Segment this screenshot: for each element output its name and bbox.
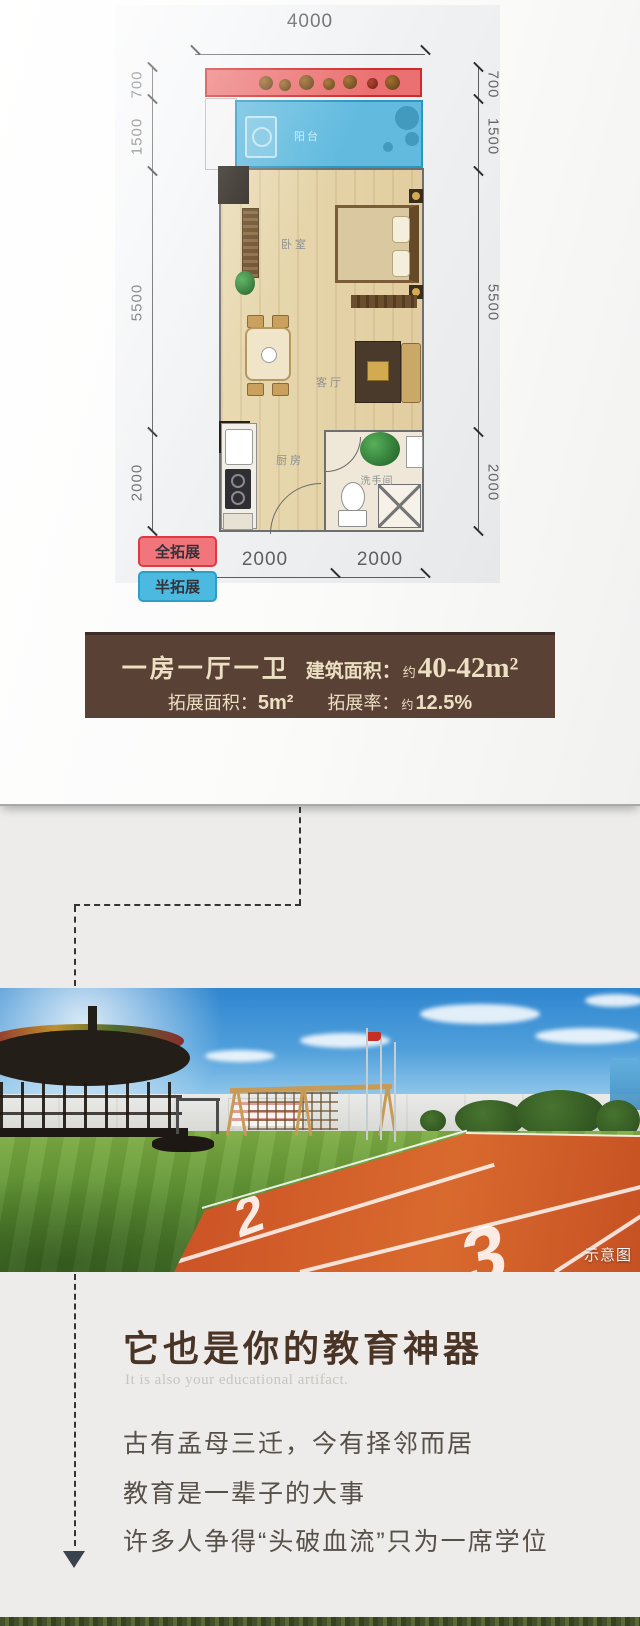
section-title: 它也是你的教育神器 — [123, 1320, 483, 1372]
dim-right-1500: 1500 — [485, 102, 502, 172]
plant-icon — [323, 78, 335, 90]
expand-rate-label: 拓展率： — [327, 689, 399, 715]
bed-bench — [351, 295, 417, 308]
bedroom-label: 卧室 — [265, 236, 325, 252]
dim-bottom-2000a: 2000 — [210, 549, 320, 571]
expand-area-label: 拓展面积： — [168, 689, 258, 715]
unit-type-title: 一房一厅一卫 — [122, 649, 290, 685]
wardrobe — [242, 208, 259, 278]
goal-frame-post — [176, 1100, 179, 1134]
balcony-plant-icon — [405, 132, 419, 146]
dim-top-line — [195, 54, 425, 55]
flag-pole — [366, 1028, 368, 1140]
unit-info-box: 一房一厅一卫 建筑面积： 约 40-42m² 拓展面积： 5m² 拓展率： 约 … — [85, 632, 555, 718]
bathroom-cabinet — [406, 436, 423, 468]
dim-bottom-2000b: 2000 — [325, 549, 435, 571]
dashed-connector-horizontal — [74, 904, 301, 906]
dashed-connector-vertical-1 — [299, 807, 301, 905]
pillow — [392, 216, 410, 243]
info-row-1: 一房一厅一卫 建筑面积： 约 40-42m² — [85, 649, 555, 685]
body-line-1: 古有孟母三迁，今有择邻而居 — [123, 1424, 474, 1460]
full-expansion-zone — [205, 68, 422, 97]
photo-watermark: 示意图 — [584, 1244, 632, 1265]
dim-left-2000: 2000 — [129, 448, 146, 518]
dim-top-label: 4000 — [250, 11, 370, 33]
balcony-zone: 阳台 — [235, 100, 423, 168]
tv-cabinet — [367, 361, 389, 381]
living-label: 客厅 — [300, 374, 360, 390]
plant-icon — [367, 78, 378, 89]
sofa — [401, 343, 421, 403]
dim-left-5500: 5500 — [129, 268, 146, 338]
plant-icon — [385, 75, 400, 90]
cloud — [535, 1028, 640, 1044]
shower-tray — [378, 484, 421, 528]
legend-half-expansion: 半拓展 — [138, 571, 217, 602]
cloud — [585, 994, 640, 1007]
floorplan-card: 4000 700 1500 5500 2000 700 1500 5500 — [0, 0, 640, 806]
built-area-value: 40-42m² — [418, 652, 519, 685]
dim-right-line — [478, 67, 479, 532]
dim-bottom-line — [195, 577, 425, 578]
flag-pole — [394, 1042, 396, 1142]
nightstand-lamp — [409, 189, 423, 203]
bathroom-plant-icon — [360, 432, 400, 466]
tree — [420, 1110, 446, 1132]
plant-icon — [343, 75, 357, 89]
expand-rate-approx: 约 — [401, 696, 413, 713]
info-row-2: 拓展面积： 5m² 拓展率： 约 12.5% — [85, 689, 555, 715]
red-flag — [368, 1032, 381, 1041]
floor-plan: 4000 700 1500 5500 2000 700 1500 5500 — [115, 5, 500, 583]
kitchen-label: 厨房 — [260, 452, 320, 468]
page: 4000 700 1500 5500 2000 700 1500 5500 — [0, 0, 640, 1626]
dashed-connector-vertical-3 — [74, 1274, 76, 1546]
plant-icon — [279, 79, 291, 91]
flag-pole — [380, 1038, 382, 1140]
bed — [335, 205, 419, 283]
plant-icon — [235, 271, 255, 295]
built-area-label: 建筑面积： — [306, 656, 401, 683]
playground-photo: 1 2 3 示意图 — [0, 988, 640, 1272]
cloud — [420, 1004, 540, 1024]
built-area-approx: 约 — [403, 662, 416, 681]
section-subtitle: It is also your educational artifact. — [125, 1372, 348, 1389]
bathroom-label: 洗手间 — [337, 472, 417, 487]
washing-machine — [245, 116, 277, 158]
toilet-tank — [338, 510, 367, 527]
body-line-3: 许多人争得“头破血流”只为一席学位 — [123, 1522, 549, 1558]
body-line-2: 教育是一辈子的大事 — [123, 1474, 366, 1510]
cloud — [205, 1050, 275, 1062]
balcony-plant-icon — [395, 106, 419, 130]
goal-frame-post — [216, 1098, 219, 1134]
dim-right-2000: 2000 — [485, 448, 502, 518]
plant-icon — [259, 76, 273, 90]
kitchen-cabinet — [223, 513, 253, 530]
dashed-connector-vertical-2 — [74, 906, 76, 986]
goal-frame-beam — [176, 1098, 220, 1101]
lane-number-3: 3 — [458, 1203, 511, 1272]
kitchen-sink — [225, 429, 253, 465]
chair — [272, 383, 289, 396]
balcony-label: 阳台 — [285, 128, 329, 144]
bench-silhouette — [152, 1136, 214, 1152]
climbing-net — [248, 1092, 338, 1130]
plant-icon — [299, 75, 314, 90]
dim-right-5500: 5500 — [485, 268, 502, 338]
dining-table — [245, 327, 291, 381]
dim-left-line — [152, 67, 153, 532]
down-arrow-indicator — [63, 1551, 85, 1568]
expand-area-value: 5m² — [258, 692, 294, 715]
balcony-plant-icon — [383, 142, 393, 152]
chair — [247, 383, 264, 396]
carousel-base — [0, 1128, 188, 1137]
next-image-strip — [0, 1617, 640, 1626]
pillow — [392, 250, 410, 277]
expand-rate-value: 12.5% — [415, 692, 472, 715]
carousel-finial — [88, 1006, 97, 1032]
dim-left-1500: 1500 — [129, 102, 146, 172]
stove — [225, 469, 251, 509]
carousel-lattice — [0, 1082, 182, 1132]
structural-column — [218, 166, 249, 204]
legend-full-expansion: 全拓展 — [138, 536, 217, 567]
side-ledge — [205, 98, 237, 170]
